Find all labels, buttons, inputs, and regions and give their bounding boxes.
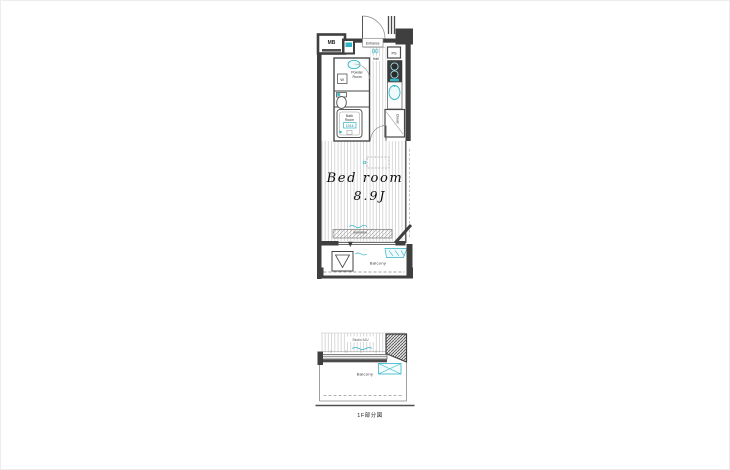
floor-plan-canvas: MB Entrance Powder Room W Ba xyxy=(1,1,730,470)
bedroom-size-label: 8.9J xyxy=(354,188,387,203)
ps-label: PS xyxy=(391,52,397,56)
stairs-hatched-block xyxy=(386,334,407,362)
main-floor-plan: MB Entrance Powder Room W Ba xyxy=(317,16,413,279)
shower-drain-icon xyxy=(339,131,341,133)
meter-box-label: MB xyxy=(328,40,336,46)
floor-plan-page: MB Entrance Powder Room W Ba xyxy=(0,0,730,470)
closet-label: Closet xyxy=(396,114,400,124)
bath-size-label: 1014 xyxy=(346,124,354,128)
shoe-cabinet-accent xyxy=(346,43,353,48)
window-counter xyxy=(333,230,392,239)
hall-label: Hall xyxy=(373,57,379,61)
burner-icon xyxy=(391,63,398,70)
1f-sill xyxy=(321,360,387,363)
handwritten-note xyxy=(355,253,367,255)
1f-partial-plan: Studio 6JU Balcony 1F部分図 xyxy=(316,333,415,419)
powder-room-label-2: Room xyxy=(352,75,361,79)
bedroom-name-label: Bed room xyxy=(326,171,404,186)
wall-right-upper xyxy=(406,44,411,141)
washer-label: W xyxy=(340,78,344,82)
balcony-label: Balcony xyxy=(370,261,386,266)
entrance-label: Entrance xyxy=(366,41,380,45)
1f-room-label: Studio 6JU xyxy=(352,338,369,342)
entrance-door-arc xyxy=(363,16,386,39)
faucet-icon xyxy=(394,85,396,87)
vent-pipes-icon xyxy=(389,16,395,34)
teal-annotation-shape xyxy=(385,249,407,258)
sink-icon xyxy=(389,86,400,100)
wall-top-right xyxy=(396,29,414,45)
bath-room-label-2: Room xyxy=(345,118,354,122)
toilet-icon xyxy=(337,97,347,109)
1f-balcony-label: Balcony xyxy=(357,372,373,377)
1f-caption: 1F部分図 xyxy=(357,411,382,419)
wall-left xyxy=(317,53,322,279)
balcony-outer-wall xyxy=(317,276,413,279)
wall-top-mid xyxy=(383,39,397,43)
burner-icon xyxy=(391,71,398,78)
meter-box-note xyxy=(322,49,341,52)
